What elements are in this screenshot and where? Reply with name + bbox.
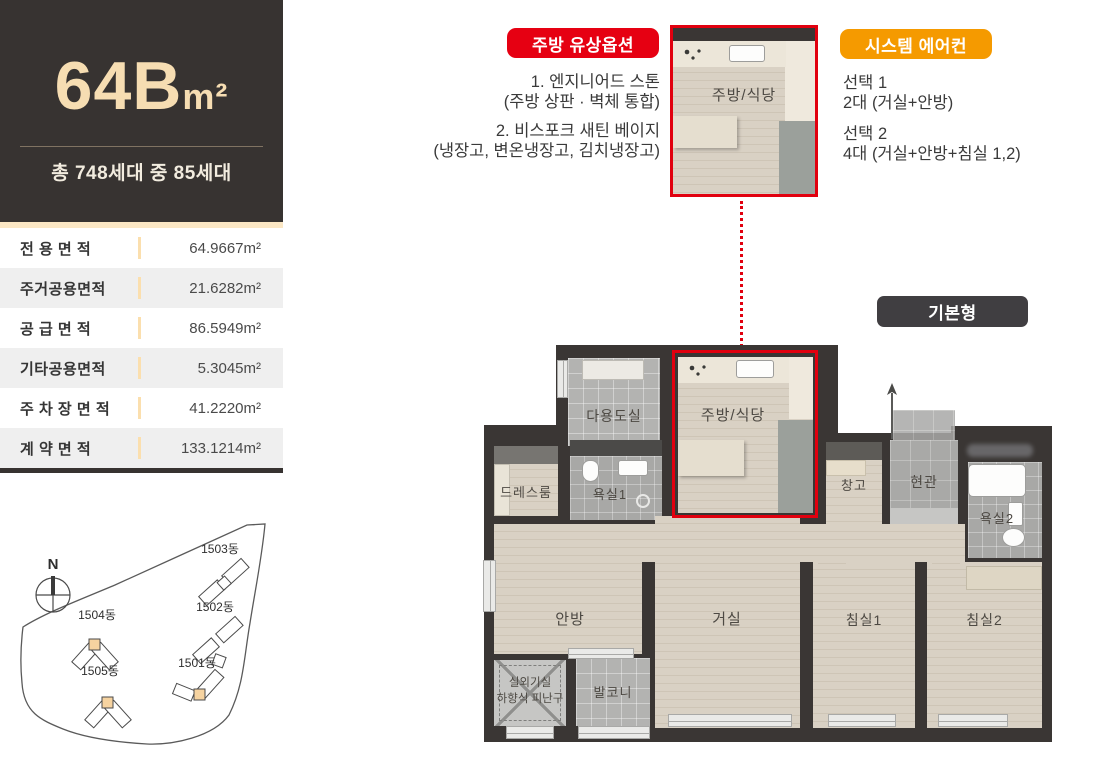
detail-cabinet	[785, 41, 815, 121]
window	[483, 560, 496, 612]
aircon-option-text: 선택 1 2대 (거실+안방) 선택 2 4대 (거실+안방+침실 1,2)	[843, 73, 1093, 175]
building-label: 1504동	[78, 608, 116, 622]
room-bed1	[813, 562, 915, 728]
kitchen-option-text: 1. 엔지니어드 스톤 (주방 상판 · 벽체 통합) 2. 비스포크 새틴 베…	[382, 72, 660, 170]
room-dress	[494, 446, 558, 516]
storage-box	[826, 460, 866, 476]
header-divider	[20, 146, 263, 147]
building-label: 1502동	[196, 600, 234, 614]
window	[568, 648, 634, 659]
room-label-bed2: 침실2	[927, 610, 1042, 630]
area-label: 주거공용면적	[0, 278, 138, 299]
area-label: 계 약 면 적	[0, 438, 138, 459]
building-label: 1503동	[201, 542, 239, 556]
utility-appliance	[582, 360, 644, 380]
table-row: 주거공용면적 21.6282m²	[0, 268, 283, 308]
room-label-entrance: 현관	[888, 472, 960, 492]
unit-type-title: 64Bm²	[0, 52, 283, 120]
bath1-vanity	[570, 440, 662, 456]
outdoor-label-line1: 실외기실	[488, 674, 572, 690]
window	[668, 714, 792, 727]
building-cluster-1505	[85, 697, 131, 728]
room-label-dress: 드레스룸	[490, 482, 562, 501]
room-utility	[568, 358, 660, 446]
door-opening	[818, 556, 846, 566]
detail-island	[673, 116, 737, 148]
bed2-closet	[966, 566, 1042, 590]
option-line: 2. 비스포크 새틴 베이지	[382, 121, 660, 141]
window	[578, 726, 650, 739]
table-row: 주 차 장 면 적 41.2220m²	[0, 388, 283, 428]
area-label: 주 차 장 면 적	[0, 398, 138, 419]
entrance-arrow-icon	[884, 383, 900, 439]
room-label-utility: 다용도실	[568, 406, 660, 426]
outdoor-label-line2: 하향식 피난구	[488, 690, 572, 706]
unit-type-header: 64Bm² 총 748세대 중 85세대	[0, 0, 283, 222]
toilet-icon	[582, 460, 599, 482]
building-label: 1501동	[178, 656, 216, 670]
area-label: 전 용 면 적	[0, 238, 138, 259]
bathtub-icon	[968, 464, 1026, 497]
compass-icon: N	[36, 556, 70, 612]
window	[828, 714, 896, 727]
dress-wardrobe	[494, 446, 558, 464]
table-row: 기타공용면적 5.3045m²	[0, 348, 283, 388]
room-label-living: 거실	[672, 608, 782, 629]
option-line: 4대 (거실+안방+침실 1,2)	[843, 144, 1093, 164]
room-label-master: 안방	[520, 608, 620, 629]
compass-north-label: N	[48, 556, 59, 573]
site-map: N 1503동 1502동 1504동 1505동	[15, 515, 285, 757]
door-opening	[932, 556, 960, 566]
callout-connector-line	[740, 201, 743, 347]
option-line: (냉장고, 변온냉장고, 김치냉장고)	[382, 141, 660, 161]
room-label-outdoor: 실외기실 하향식 피난구	[488, 674, 572, 706]
brochure-page: 64Bm² 총 748세대 중 85세대 전 용 면 적 64.9667m² 주…	[0, 0, 1100, 764]
detail-room-label: 주방/식당	[685, 84, 803, 105]
area-value: 86.5949m²	[141, 320, 283, 337]
room-label-bath2: 욕실2	[962, 508, 1032, 527]
household-count: 총 748세대 중 85세대	[0, 158, 283, 185]
kitchen-highlight-zone	[672, 350, 818, 518]
room-label-bath1: 욕실1	[570, 484, 650, 503]
building-cluster-1503	[199, 558, 249, 605]
window	[506, 726, 554, 739]
building-label: 1505동	[81, 664, 119, 678]
sink-icon	[729, 45, 765, 62]
area-value: 133.1214m²	[141, 440, 283, 457]
detail-pantry	[779, 121, 815, 194]
stove-icon	[681, 46, 707, 62]
option-line: 선택 2	[843, 124, 1093, 144]
area-value: 21.6282m²	[141, 280, 283, 297]
entrance-step	[890, 508, 958, 524]
option-line: 2대 (거실+안방)	[843, 93, 1093, 113]
kitchen-option-badge: 주방 유상옵션	[507, 28, 659, 58]
kitchen-detail-callout: 주방/식당	[670, 25, 818, 197]
window	[557, 360, 568, 398]
building-cluster-1501	[173, 669, 224, 701]
plan-type-badge: 기본형	[877, 296, 1028, 327]
table-row: 공 급 면 적 86.5949m²	[0, 308, 283, 348]
room-label-storage: 창고	[822, 475, 886, 494]
room-master	[494, 524, 642, 654]
room-label-balcony: 발코니	[576, 682, 650, 701]
window	[938, 714, 1008, 727]
area-value: 64.9667m²	[141, 240, 283, 257]
table-row: 전 용 면 적 64.9667m²	[0, 228, 283, 268]
area-label: 공 급 면 적	[0, 318, 138, 339]
option-line: 1. 엔지니어드 스톤	[382, 72, 660, 92]
option-line: 선택 1	[843, 73, 1093, 93]
toilet-icon	[1002, 528, 1025, 547]
room-label-bed1: 침실1	[813, 610, 915, 630]
option-line: (주방 상판 · 벽체 통합)	[382, 92, 660, 112]
sink-icon	[618, 460, 648, 476]
bath2-shelf	[967, 444, 1033, 457]
unit-type-unit: m²	[182, 76, 228, 117]
aircon-option-badge: 시스템 에어컨	[840, 29, 992, 59]
entrance-landing	[893, 410, 955, 440]
area-value: 5.3045m²	[141, 360, 283, 377]
area-value: 41.2220m²	[141, 400, 283, 417]
detail-wall	[673, 28, 815, 41]
unit-type-name: 64B	[55, 48, 183, 124]
table-row: 계 약 면 적 133.1214m²	[0, 428, 283, 468]
area-table: 전 용 면 적 64.9667m² 주거공용면적 21.6282m² 공 급 면…	[0, 228, 283, 473]
area-label: 기타공용면적	[0, 358, 138, 379]
storage-shelf	[826, 442, 882, 460]
